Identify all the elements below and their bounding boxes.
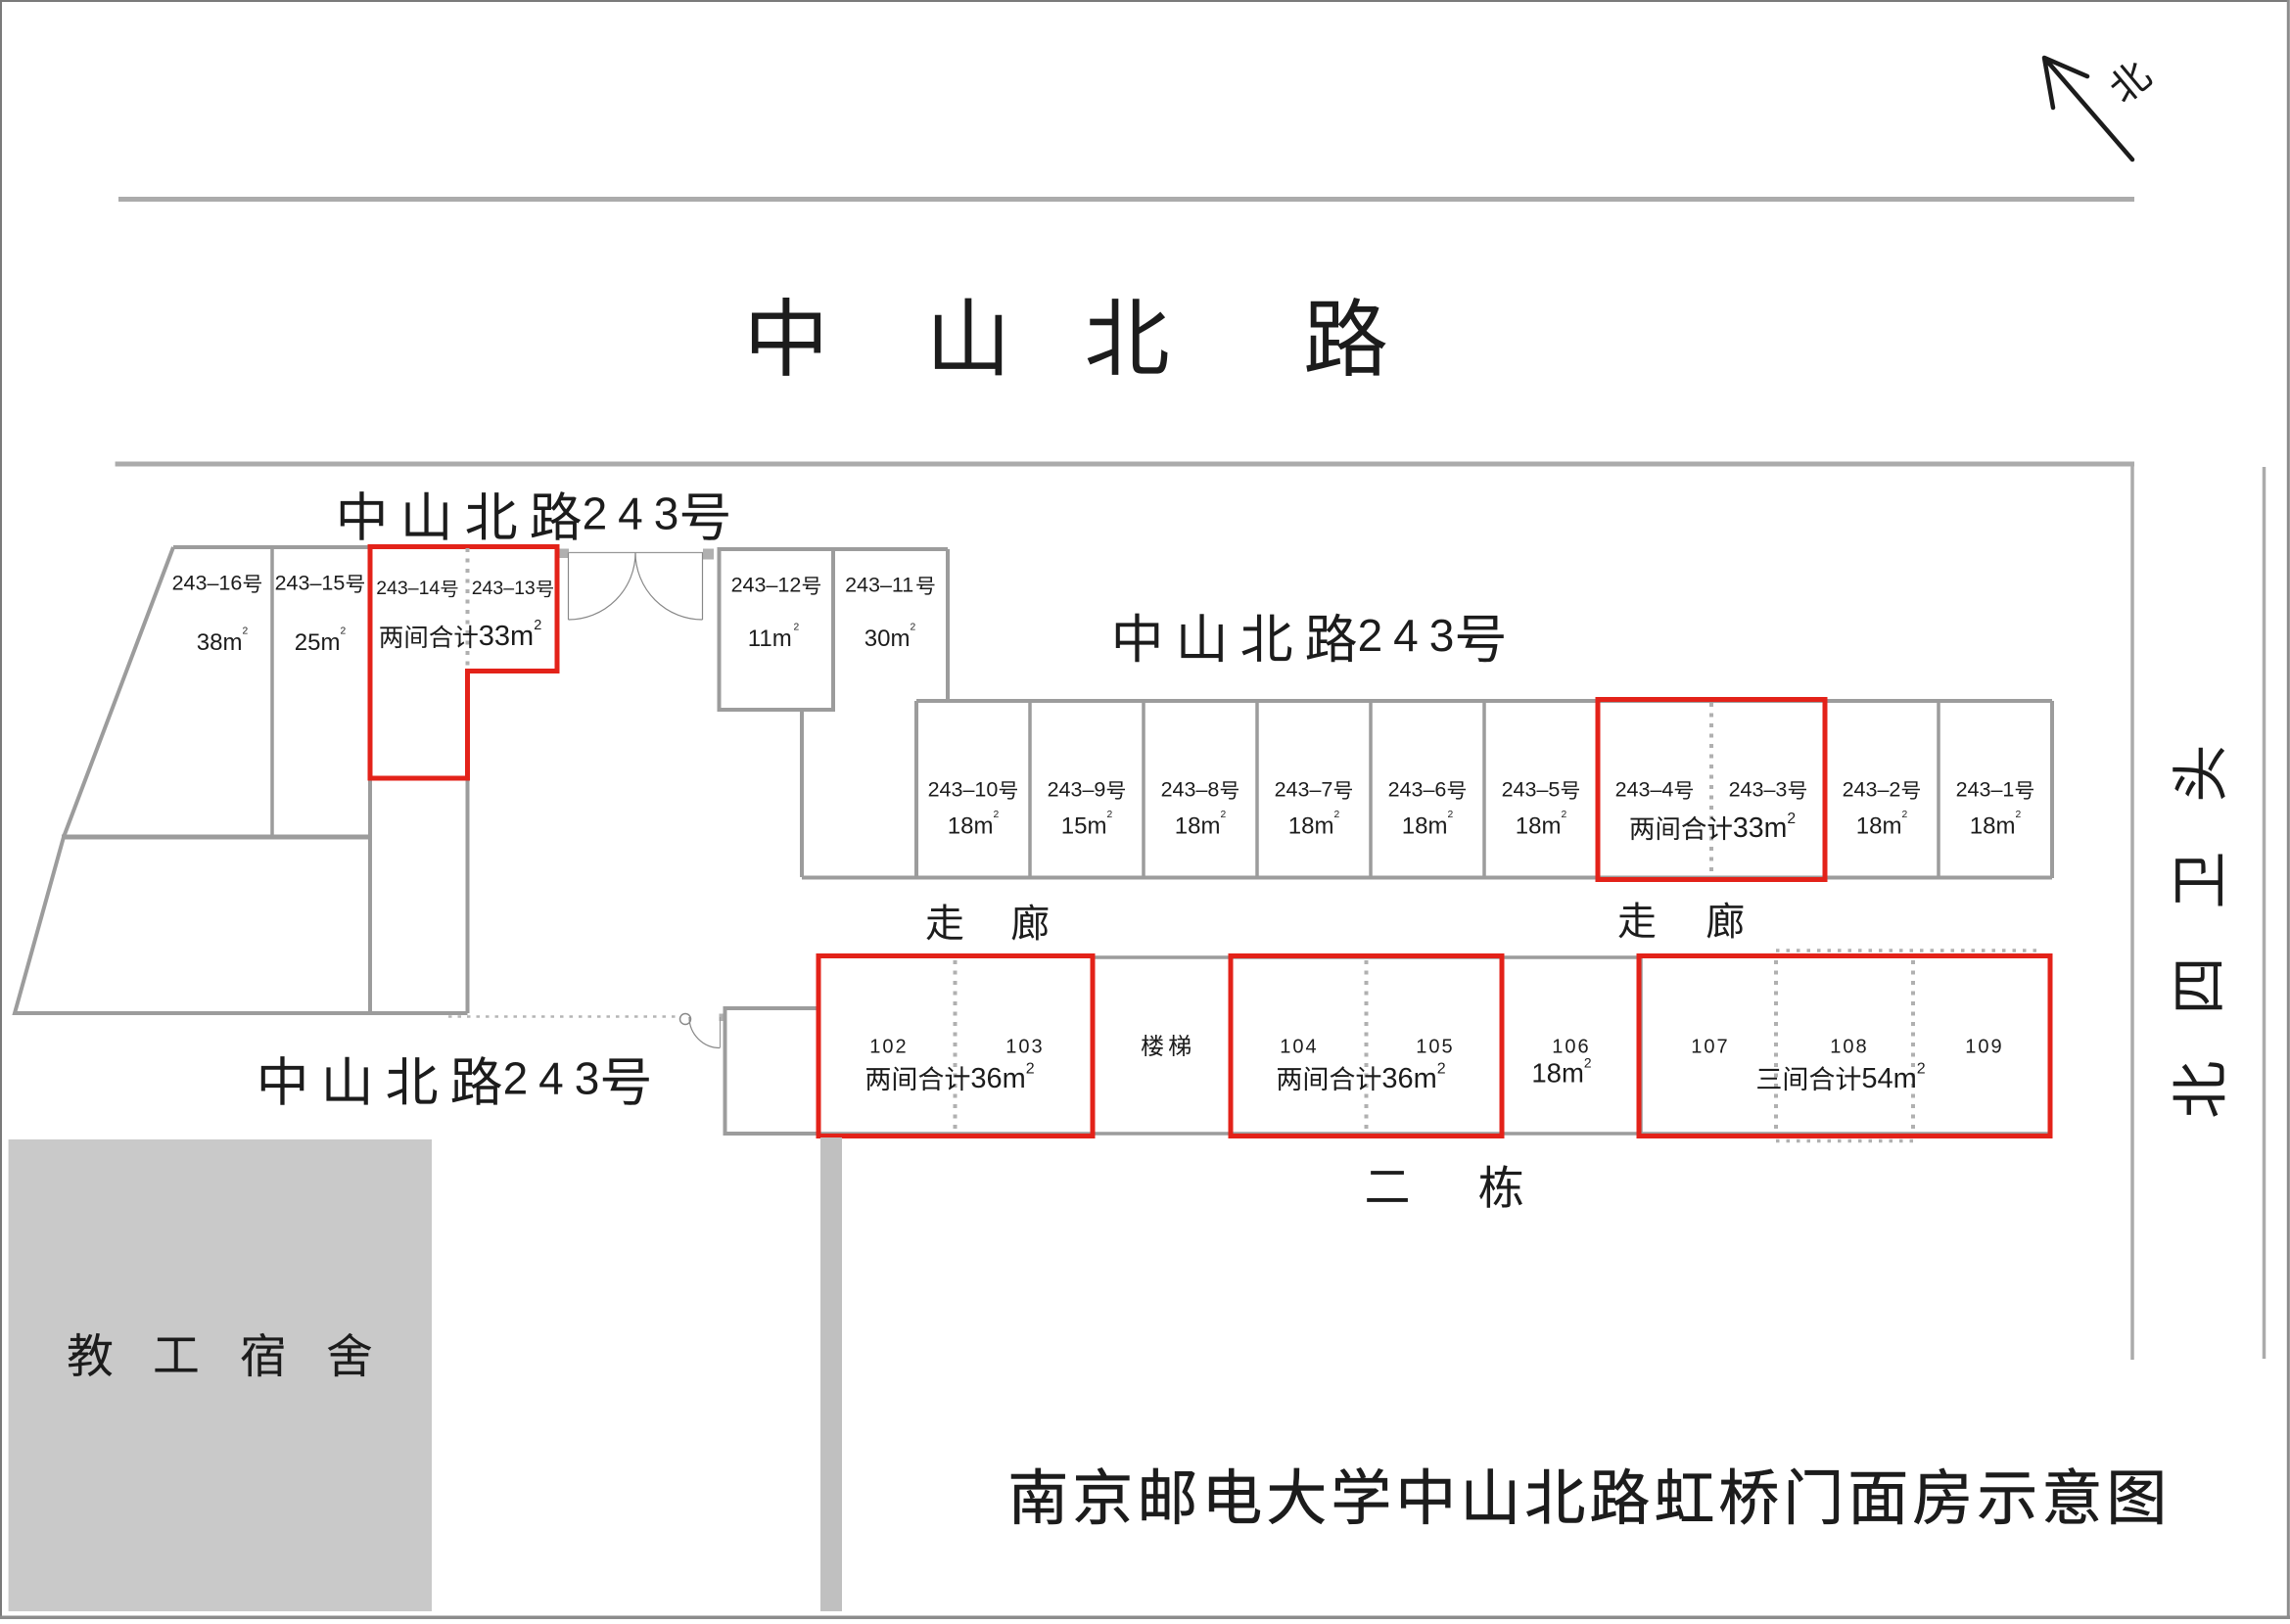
svg-text:243: 243 [1358, 610, 1466, 661]
svg-text:18m: 18m [1856, 813, 1902, 840]
svg-text:2: 2 [1437, 1061, 1446, 1078]
svg-text:33m: 33m [1733, 812, 1787, 844]
svg-text:18m: 18m [1970, 813, 2016, 840]
svg-text:18m: 18m [1531, 1058, 1584, 1089]
svg-text:243–5: 243–5 [1502, 778, 1561, 802]
svg-text:243–1: 243–1 [1956, 778, 2015, 802]
svg-text:2: 2 [1221, 810, 1227, 820]
svg-text:106: 106 [1552, 1037, 1590, 1058]
svg-text:243: 243 [503, 1053, 611, 1104]
svg-text:25m: 25m [295, 629, 341, 656]
svg-text:18m: 18m [1402, 813, 1448, 840]
svg-text:243–13: 243–13 [472, 578, 536, 599]
svg-text:33m: 33m [479, 621, 534, 652]
svg-text:18m: 18m [1516, 813, 1562, 840]
svg-text:36m: 36m [1381, 1063, 1436, 1094]
svg-text:38m: 38m [197, 629, 243, 656]
svg-text:2: 2 [1448, 810, 1454, 820]
svg-text:243–15: 243–15 [275, 572, 346, 595]
svg-text:2: 2 [1562, 810, 1567, 820]
svg-text:243: 243 [583, 488, 690, 539]
svg-text:54m: 54m [1861, 1063, 1916, 1094]
svg-text:15m: 15m [1061, 813, 1107, 840]
svg-text:2: 2 [1787, 811, 1796, 827]
svg-text:243–16: 243–16 [172, 572, 243, 595]
svg-text:2: 2 [1026, 1061, 1035, 1078]
svg-text:109: 109 [1965, 1037, 2003, 1058]
svg-text:18m: 18m [1288, 813, 1334, 840]
svg-text:2: 2 [1584, 1055, 1592, 1070]
svg-text:243–3: 243–3 [1729, 778, 1788, 802]
svg-text:2: 2 [1902, 810, 1908, 820]
svg-text:2: 2 [1917, 1061, 1926, 1078]
svg-text:18m: 18m [1175, 813, 1221, 840]
svg-text:2: 2 [243, 626, 249, 636]
svg-text:2: 2 [534, 618, 541, 633]
svg-text:243–14: 243–14 [376, 578, 440, 599]
svg-text:243–12: 243–12 [731, 574, 802, 597]
svg-text:243–8: 243–8 [1161, 778, 1220, 802]
svg-text:103: 103 [1005, 1037, 1044, 1058]
svg-text:2: 2 [794, 622, 800, 632]
svg-text:11m: 11m [748, 626, 792, 652]
svg-text:243–11: 243–11 [845, 574, 913, 597]
svg-text:2: 2 [1334, 810, 1340, 820]
svg-text:2: 2 [2016, 810, 2022, 820]
svg-text:243–7: 243–7 [1275, 778, 1333, 802]
svg-text:107: 107 [1691, 1037, 1729, 1058]
svg-text:30m: 30m [865, 626, 911, 652]
svg-text:102: 102 [869, 1037, 908, 1058]
svg-text:2: 2 [341, 626, 347, 636]
svg-text:2: 2 [911, 622, 916, 632]
svg-text:243–2: 243–2 [1843, 778, 1901, 802]
svg-text:243–10: 243–10 [928, 778, 999, 802]
svg-text:243–4: 243–4 [1615, 778, 1674, 802]
svg-text:243–9: 243–9 [1048, 778, 1106, 802]
svg-text:2: 2 [994, 810, 1000, 820]
svg-text:104: 104 [1280, 1037, 1318, 1058]
svg-text:243–6: 243–6 [1388, 778, 1447, 802]
svg-text:108: 108 [1830, 1037, 1868, 1058]
svg-text:18m: 18m [948, 813, 994, 840]
svg-text:36m: 36m [970, 1063, 1025, 1094]
svg-text:105: 105 [1416, 1037, 1454, 1058]
svg-text:2: 2 [1107, 810, 1113, 820]
